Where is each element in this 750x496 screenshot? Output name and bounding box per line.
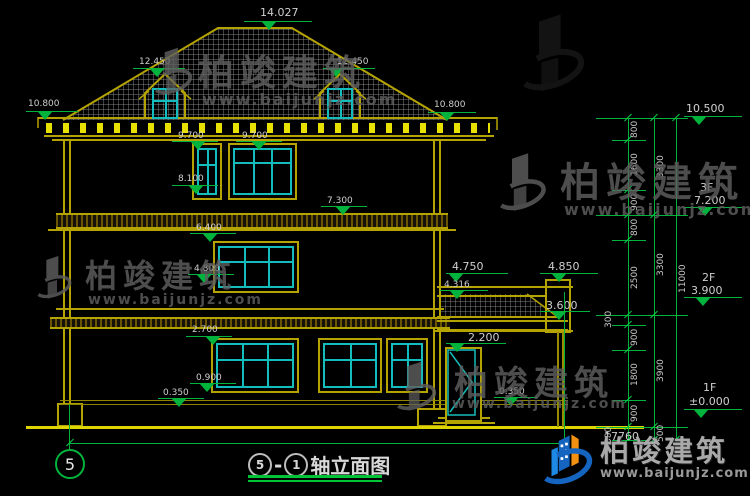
level-triangle (38, 112, 52, 120)
level-triangle (450, 291, 464, 299)
brand-logo-text: 柏竣建筑 (600, 437, 749, 466)
glass (233, 148, 292, 195)
dim-text: 1800 (630, 350, 642, 400)
watermark-url: www.baijunjz.com (452, 396, 627, 412)
dim-text: 800 (630, 118, 642, 140)
level-label: 4.850 (548, 260, 580, 273)
level-line (244, 21, 312, 22)
glass (216, 343, 294, 388)
level-line (684, 297, 742, 298)
mullion (350, 345, 352, 386)
title-underline-2 (248, 480, 382, 482)
transom (235, 162, 290, 164)
level-label: 0.350 (163, 388, 189, 398)
level-label: 9.700 (178, 131, 204, 141)
watermark-url: www.baijunjz.com (202, 90, 397, 109)
dim-text: 3900 (656, 315, 668, 427)
level-label: 9.700 (242, 131, 268, 141)
title-separator: - (274, 453, 282, 477)
level-triangle (172, 399, 186, 407)
watermark-url: www.baijunjz.com (564, 200, 750, 219)
floor-level-label: 10.500 (686, 102, 725, 115)
level-triangle (206, 337, 220, 345)
watermark-url: www.baijunjz.com (88, 292, 263, 308)
cornice-end-hooks (38, 117, 497, 130)
mullion (242, 345, 244, 386)
floor-level-label: 3.900 (691, 284, 723, 297)
level-triangle (189, 186, 203, 194)
axis-number: 5 (65, 455, 75, 474)
window-1f-middle (318, 338, 382, 393)
level-triangle (203, 234, 217, 242)
level-triangle (440, 113, 454, 121)
transom (218, 359, 292, 361)
dim-text: 900 (630, 400, 642, 427)
watermark-logo-icon (150, 42, 194, 102)
brand-logo: 柏竣建筑 www.baijunjz.com (538, 430, 749, 488)
level-label: 14.027 (260, 6, 299, 19)
level-label: 7.300 (327, 196, 353, 206)
watermark-brand: 柏竣建筑 (198, 44, 366, 96)
level-triangle (450, 344, 464, 352)
bottom-dim-line (70, 443, 564, 444)
title-underline-1 (248, 475, 382, 478)
mullion (271, 150, 273, 193)
level-label: 0.900 (196, 373, 222, 383)
axis-bubble-5: 5 (55, 449, 85, 479)
watermark-brand: 柏竣建筑 (85, 251, 237, 297)
level-triangle (694, 410, 708, 418)
brand-logo-icon (538, 430, 594, 488)
dim-text: 3300 (656, 215, 668, 315)
mullion (207, 150, 209, 193)
level-line (540, 273, 598, 274)
transom (199, 164, 215, 166)
watermark-logo-icon (494, 148, 548, 218)
level-triangle (252, 142, 266, 150)
level-triangle (692, 117, 706, 125)
mullion (267, 345, 269, 386)
floor-level-label: ±0.000 (689, 395, 730, 408)
level-label: 8.100 (178, 174, 204, 184)
floor-name: 1F (703, 381, 716, 394)
title-axis-to: 1 (284, 453, 308, 477)
elevation-drawing-canvas: 14.027 12.450 12.450 10.800 10.800 9.700… (0, 0, 750, 496)
watermark-logo-icon (392, 356, 438, 418)
level-line (684, 409, 742, 410)
mullion (268, 248, 270, 286)
dim-text: 300 (604, 304, 616, 334)
dim-text: 900 (630, 325, 642, 350)
brand-logo-url: www.baijunjz.com (600, 466, 749, 481)
level-label: 4.316 (444, 280, 470, 290)
level-label: 10.800 (434, 100, 466, 110)
level-line (26, 111, 78, 112)
floor-name: 2F (702, 271, 715, 284)
glass (323, 343, 377, 388)
watermark-top-right-faint (515, 8, 587, 100)
mullion (244, 248, 246, 286)
level-triangle (336, 207, 350, 215)
level-triangle (262, 22, 276, 30)
level-triangle (696, 298, 710, 306)
mullion (253, 150, 255, 193)
level-label: 4.750 (452, 260, 484, 273)
level-label: 10.800 (28, 99, 60, 109)
level-triangle (191, 142, 205, 150)
dim-text: 2500 (630, 240, 642, 315)
level-triangle (200, 384, 214, 392)
level-label: 2.700 (192, 325, 218, 335)
window-1f-left (211, 338, 299, 393)
level-triangle (552, 274, 566, 282)
transom (325, 359, 375, 361)
level-label: 6.400 (196, 223, 222, 233)
level-line (440, 290, 488, 291)
watermark-logo-icon (33, 250, 73, 306)
title-axis-from: 5 (248, 453, 272, 477)
window-3f-large (228, 143, 297, 200)
watermark-logo-icon (515, 8, 587, 100)
